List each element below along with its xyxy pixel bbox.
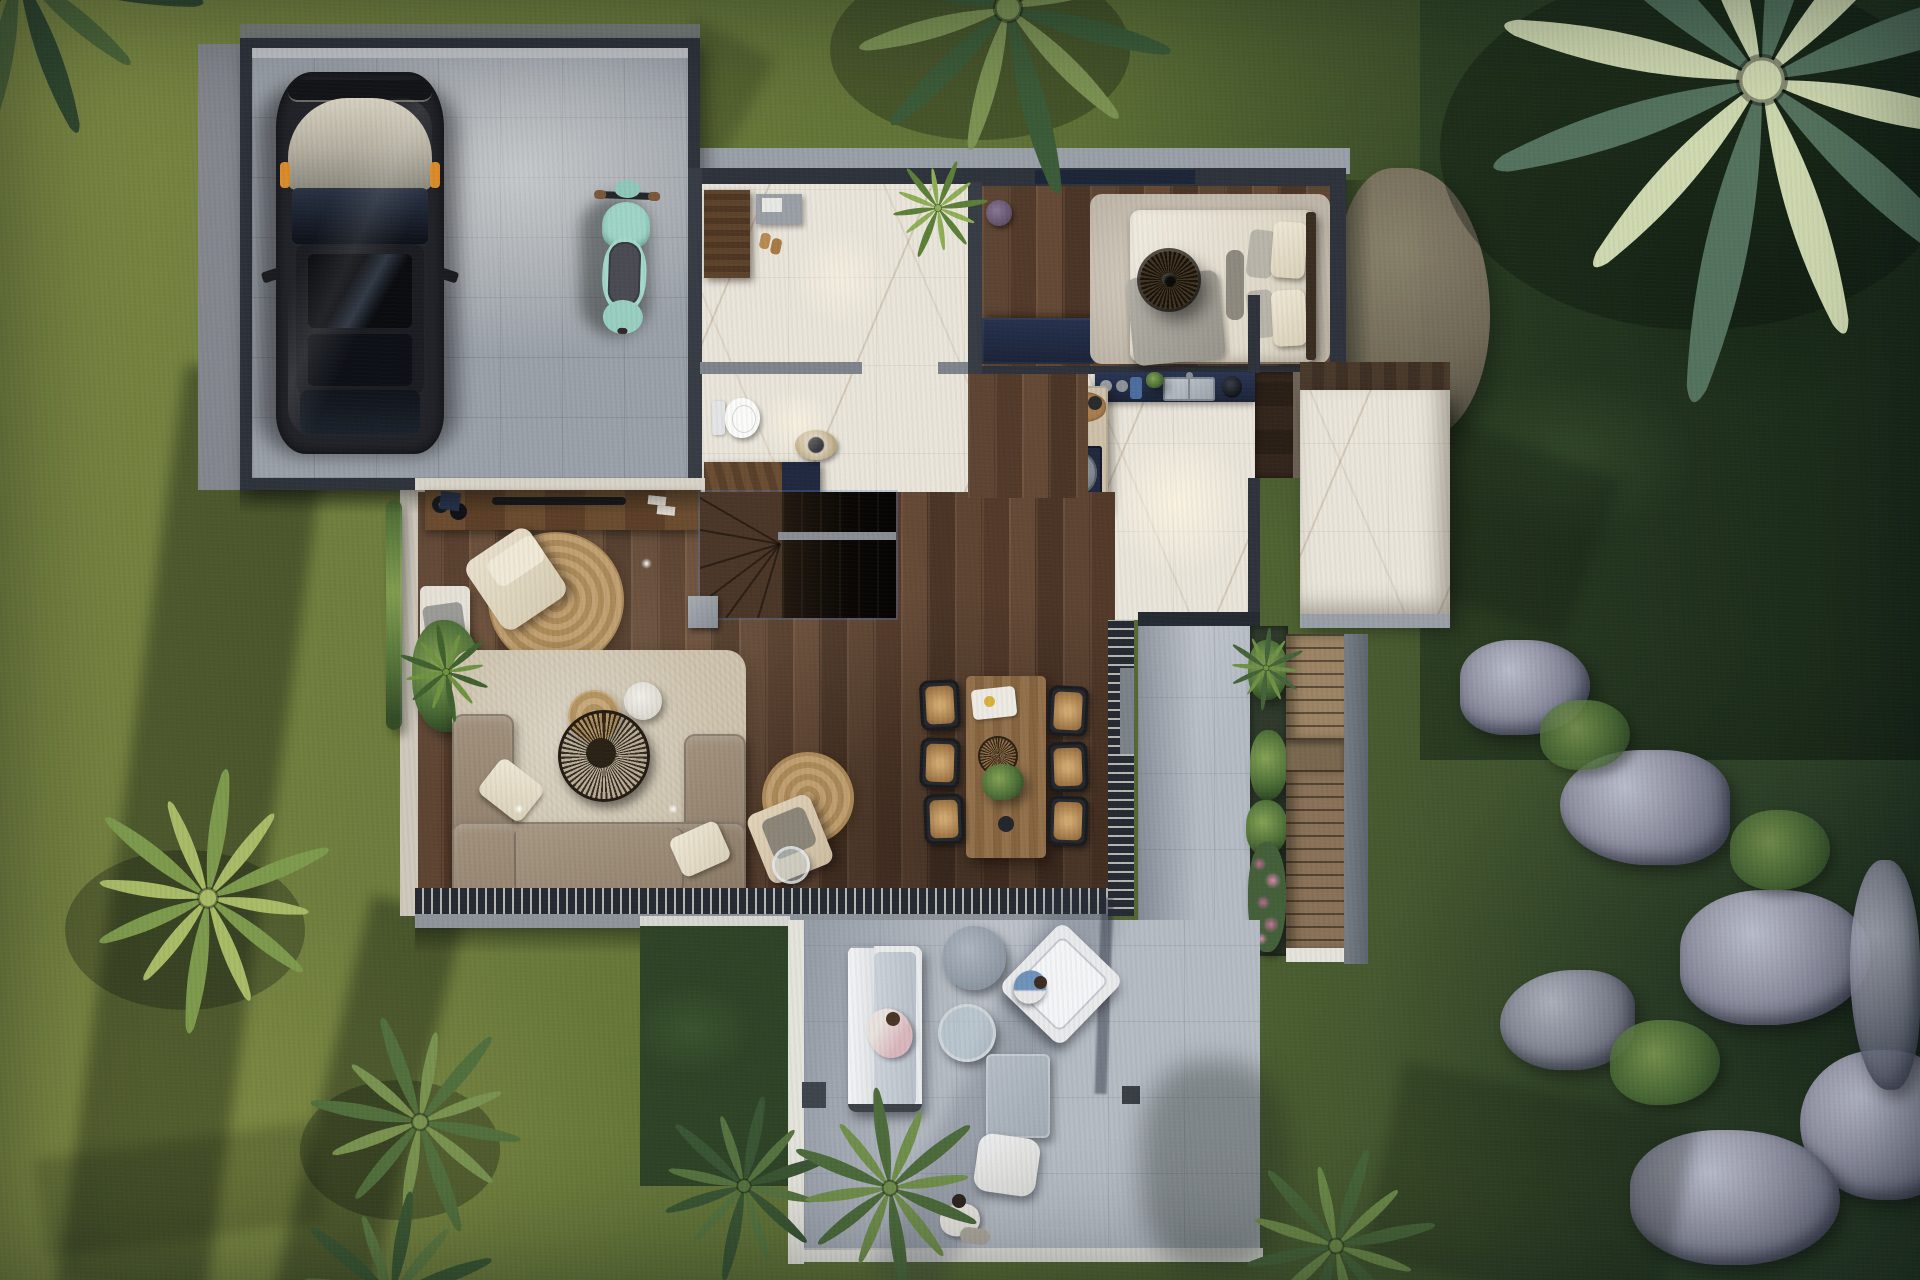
bed-lumbar-pillow: [1226, 250, 1244, 320]
kitchen-faucet: [1186, 372, 1193, 379]
chair-rattan-seat: [1053, 691, 1083, 730]
inset-lawn-patch: [640, 926, 788, 1186]
scooter: [589, 179, 660, 335]
bath-divider-wall: [700, 362, 862, 374]
sofa-seat-seam: [514, 828, 684, 892]
kitchen-right-wall-top: [1248, 295, 1260, 373]
stair-cube-stool: [688, 596, 718, 628]
lawn-patch-curb-top: [640, 916, 790, 926]
bedroom-window-strip: [1035, 170, 1195, 184]
garden-stairs-lower: [1286, 770, 1344, 950]
downlight-glint: [514, 804, 524, 814]
white-pouf: [972, 1132, 1041, 1198]
dining-chair: [1047, 795, 1089, 846]
door-mat: [802, 1082, 826, 1108]
scooter-grip-left: [594, 190, 606, 199]
east-door-jamb: [1120, 668, 1134, 754]
dining-drink: [984, 696, 995, 707]
dining-bowl: [998, 816, 1014, 832]
scooter-grip-right: [648, 192, 660, 201]
south-window-wall: [415, 888, 1108, 916]
dining-chair: [1047, 685, 1090, 737]
pendant-center: [1162, 273, 1176, 287]
stair-retaining-wall: [1344, 634, 1368, 964]
upper-marble-pad: [1300, 390, 1450, 620]
stair-landing-edge: [778, 532, 896, 540]
wire-table-center: [586, 738, 616, 768]
east-window-wall: [1108, 620, 1134, 916]
dining-chair: [923, 793, 965, 844]
chair-rattan-seat: [1053, 802, 1082, 841]
bedroom-right-wall: [1330, 168, 1346, 374]
chair-rattan-seat: [1053, 748, 1082, 787]
person-head: [952, 1194, 966, 1208]
downlight-glint: [668, 804, 678, 814]
rattan-basket: [795, 430, 837, 460]
scooter-taillight: [617, 328, 627, 334]
glass-side-table: [772, 846, 810, 884]
toilet-tank: [712, 401, 725, 435]
dining-chair: [919, 679, 962, 731]
chair-rattan-seat: [925, 744, 954, 783]
downlight-glint: [641, 558, 652, 569]
shrub: [1610, 1020, 1720, 1105]
kitchen-kettle: [1222, 376, 1242, 398]
stair-dark-flight: [782, 492, 896, 618]
bedroom-pouf: [986, 200, 1012, 226]
outdoor-sofa-frame: [848, 1104, 922, 1112]
sideboard-books: [648, 495, 667, 506]
record-sleeve: [439, 491, 461, 512]
window-planter-grass: [386, 500, 402, 730]
entry-console: [704, 190, 750, 278]
soundbar: [492, 497, 626, 505]
stairwell: [700, 492, 896, 618]
garden-stairs-landing: [1286, 740, 1344, 770]
white-side-table: [624, 682, 662, 720]
entry-bench-papers: [762, 198, 782, 212]
hall-corridor-floor: [968, 374, 1088, 498]
person-sitting-terrace: [936, 1190, 992, 1250]
kitchen-bottom-wall: [1138, 612, 1260, 626]
person-head: [886, 1012, 900, 1026]
kitchen-sink-divider: [1188, 377, 1190, 401]
dining-chair: [1047, 741, 1089, 792]
person-on-lounge: [1014, 962, 1064, 1010]
person-legs: [959, 1226, 991, 1246]
dining-chair: [919, 737, 961, 788]
bed-white-pillow: [1271, 289, 1308, 347]
walkway-shadow: [1138, 626, 1198, 926]
terrace-bottom-curb: [795, 1248, 1263, 1262]
terrace-daybed: [986, 1054, 1050, 1138]
garage-apron-left: [198, 44, 242, 490]
bedroom-dresser: [982, 318, 1094, 364]
gray-round-pouf: [942, 926, 1006, 990]
person-on-sofa: [866, 1002, 916, 1062]
floor-drain: [1122, 1086, 1140, 1104]
suv-car: [276, 72, 444, 454]
chair-rattan-seat: [925, 685, 955, 724]
stairs-base-curb: [1286, 948, 1344, 962]
toilet-lid-seam: [732, 405, 756, 433]
deck-strip: [1300, 362, 1450, 392]
scooter-seat: [607, 241, 641, 306]
bed-headboard: [1306, 212, 1316, 360]
toilet: [712, 396, 762, 440]
chair-rattan-seat: [929, 800, 958, 839]
aerial-villa-render: [0, 0, 1920, 1280]
kitchen-blue-towel: [1130, 377, 1142, 399]
glass-round-table: [938, 1004, 996, 1062]
pad-curb: [1300, 614, 1450, 628]
garden-stairs-upper: [1286, 634, 1344, 740]
car-reflection: [288, 98, 432, 438]
rock: [1680, 890, 1870, 1025]
person-head: [1034, 976, 1047, 989]
entry-top-wall: [700, 168, 982, 184]
bed-white-pillow: [1270, 221, 1308, 279]
person-body: [1007, 964, 1053, 1011]
shrub: [1730, 810, 1830, 890]
garage-door-threshold: [252, 48, 688, 58]
kitchen-right-wall-bottom: [1248, 478, 1260, 620]
